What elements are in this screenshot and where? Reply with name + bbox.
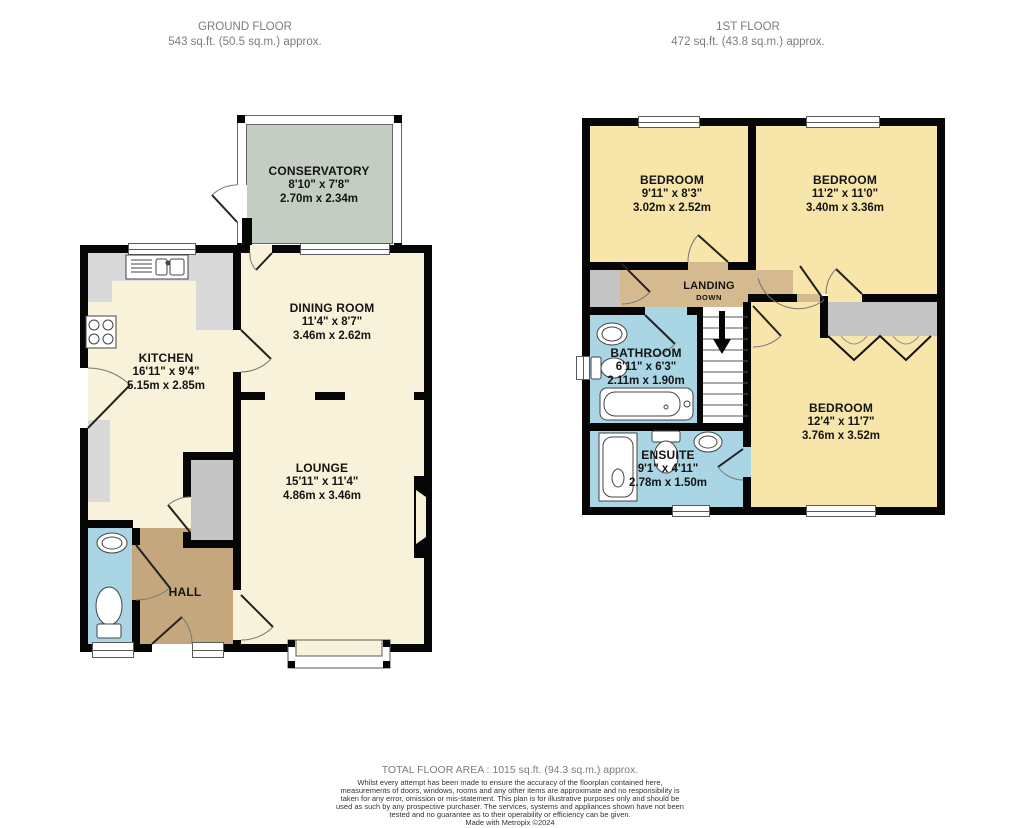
bathroom-doorway <box>645 307 687 315</box>
dining-window <box>300 243 390 255</box>
ground-floor-title: GROUND FLOOR <box>95 20 395 35</box>
ground-floor-area: 543 sq.ft. (50.5 sq.m.) approx. <box>95 35 395 50</box>
ensuite-window <box>672 505 710 517</box>
metropix-credit: Made with Metropix ©2024 <box>0 818 1020 827</box>
first-floor-area: 472 sq.ft. (43.8 sq.m.) approx. <box>598 35 898 50</box>
conservatory-doorway <box>250 245 272 253</box>
first-floor-header: 1ST FLOOR 472 sq.ft. (43.8 sq.m.) approx… <box>598 20 898 50</box>
bedroom3-window <box>806 505 876 517</box>
label-conservatory: CONSERVATORY 8'10" x 7'8" 2.70m x 2.34m <box>239 164 399 206</box>
kitchen-window <box>128 243 196 255</box>
first-floor-title: 1ST FLOOR <box>598 20 898 35</box>
bedroom2-doorway <box>828 294 862 302</box>
bedroom1-doorway <box>688 262 728 270</box>
label-lounge: LOUNGE 15'11" x 11'4" 4.86m x 3.46m <box>242 461 402 503</box>
total-floor-area: TOTAL FLOOR AREA : 1015 sq.ft. (94.3 sq.… <box>0 764 1020 776</box>
label-hall: HALL <box>135 585 235 599</box>
label-bedroom-2: BEDROOM 11'2" x 11'0" 3.40m x 3.36m <box>765 173 925 215</box>
floorplan-page: GROUND FLOOR 543 sq.ft. (50.5 sq.m.) app… <box>0 0 1020 828</box>
label-bathroom: BATHROOM 6'11" x 6'3" 2.11m x 1.90m <box>566 346 726 388</box>
wc-window <box>92 642 134 658</box>
label-bedroom-3: BEDROOM 12'4" x 11'7" 3.76m x 3.52m <box>761 401 921 443</box>
hall-window <box>192 642 224 658</box>
label-kitchen: KITCHEN 16'11" x 9'4" 5.15m x 2.85m <box>86 351 246 393</box>
label-ensuite: ENSUITE 9'1" x 4'11" 2.78m x 1.50m <box>588 448 748 490</box>
ground-floor-header: GROUND FLOOR 543 sq.ft. (50.5 sq.m.) app… <box>95 20 395 50</box>
bedroom1-window <box>638 116 700 128</box>
label-bedroom-1: BEDROOM 9'11" x 8'3" 3.02m x 2.52m <box>592 173 752 215</box>
disclaimer: Whilst every attempt has been made to en… <box>334 779 686 819</box>
bedroom2-window <box>806 116 880 128</box>
label-landing: LANDING DOWN <box>629 279 789 302</box>
label-dining-room: DINING ROOM 11'4" x 8'7" 3.46m x 2.62m <box>252 301 412 343</box>
landing-doorway <box>797 294 820 302</box>
